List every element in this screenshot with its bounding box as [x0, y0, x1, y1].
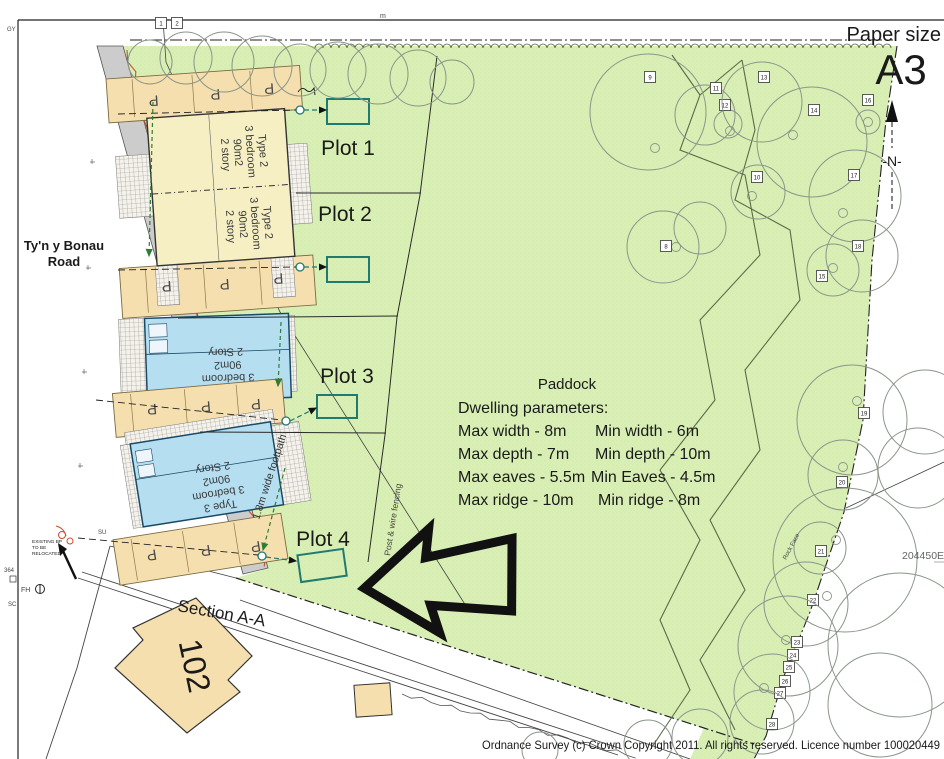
tree-number: 16 [865, 98, 872, 104]
tree-number: 10 [754, 175, 761, 181]
ref-364: 364 [4, 568, 15, 574]
svg-text:Max depth - 7m: Max depth - 7m [458, 446, 569, 463]
tree-number: 25 [786, 665, 793, 671]
svg-text:P: P [161, 277, 172, 295]
sc-label: SC [8, 602, 17, 608]
svg-text:RELOCATED: RELOCATED [32, 551, 61, 557]
plot3-label: Plot 3 [320, 365, 374, 388]
tree-number: 19 [861, 411, 868, 417]
plot2-label: Plot 2 [318, 203, 372, 226]
svg-text:TO BE: TO BE [32, 545, 46, 551]
tree-number: 15 [819, 274, 826, 280]
north-label: -N- [882, 153, 902, 169]
plot1-label: Plot 1 [321, 137, 375, 160]
road-label-line2: Road [48, 254, 81, 269]
tree-number: 17 [851, 173, 858, 179]
porch [138, 464, 156, 478]
paddock-label: Paddock [538, 376, 597, 393]
tree-number: 13 [761, 75, 768, 81]
tree-number: 28 [769, 722, 776, 728]
os-copyright: Ordnance Survey (c) Crown Copyright 2011… [482, 738, 940, 752]
svg-text:P: P [210, 85, 221, 103]
tree-number: 20 [839, 480, 846, 486]
tree-number: 23 [794, 640, 801, 646]
tree-number: 18 [855, 244, 862, 250]
paper-size-label: Paper size [847, 24, 942, 46]
road-label-line1: Ty'n y Bonau [24, 238, 104, 253]
parking-p: P [250, 395, 261, 413]
svg-text:Min depth - 10m: Min depth - 10m [595, 446, 711, 463]
svg-text:P: P [273, 269, 284, 287]
tree-number: 14 [811, 108, 818, 114]
parameters-title: Dwelling parameters: [458, 400, 608, 417]
tree-number: 11 [713, 86, 720, 92]
tree-number: 21 [818, 549, 825, 555]
svg-text:EXISTING BP: EXISTING BP [32, 539, 62, 545]
grid-reference: 204450E [902, 550, 944, 562]
parking-p: P [146, 400, 157, 418]
cut-label: m [380, 13, 386, 20]
svg-text:Min width - 6m: Min width - 6m [595, 423, 699, 440]
porch [135, 449, 153, 463]
svg-text:Max width - 8m: Max width - 8m [458, 423, 566, 440]
svg-text:P: P [148, 91, 159, 109]
tree-number: 26 [782, 679, 789, 685]
svg-text:Min Eaves - 4.5m: Min Eaves - 4.5m [591, 469, 715, 486]
svg-text:Min ridge - 8m: Min ridge - 8m [598, 492, 700, 509]
site-plan-drawing: Type 2 3 bedroom 90m2 2 story Type 2 3 b… [0, 0, 944, 759]
plot4-label: Plot 4 [296, 528, 350, 551]
svg-text:Max ridge - 10m: Max ridge - 10m [458, 492, 574, 509]
site-plan-page: Type 2 3 bedroom 90m2 2 story Type 2 3 b… [0, 0, 944, 759]
gy-label: GY [7, 27, 16, 33]
fh-label: FH [21, 587, 30, 594]
outbuilding [354, 683, 392, 717]
semi-detached-house-type2 [147, 109, 295, 266]
svg-text:Max eaves - 5.5m: Max eaves - 5.5m [458, 469, 585, 486]
paper-size-value: A3 [875, 46, 926, 93]
su-label: SU [98, 530, 106, 536]
porch [149, 324, 167, 338]
svg-text:P: P [219, 275, 230, 293]
porch [149, 340, 167, 354]
plots-1-2-block: Type 2 3 bedroom 90m2 2 story Type 2 3 b… [106, 65, 318, 318]
